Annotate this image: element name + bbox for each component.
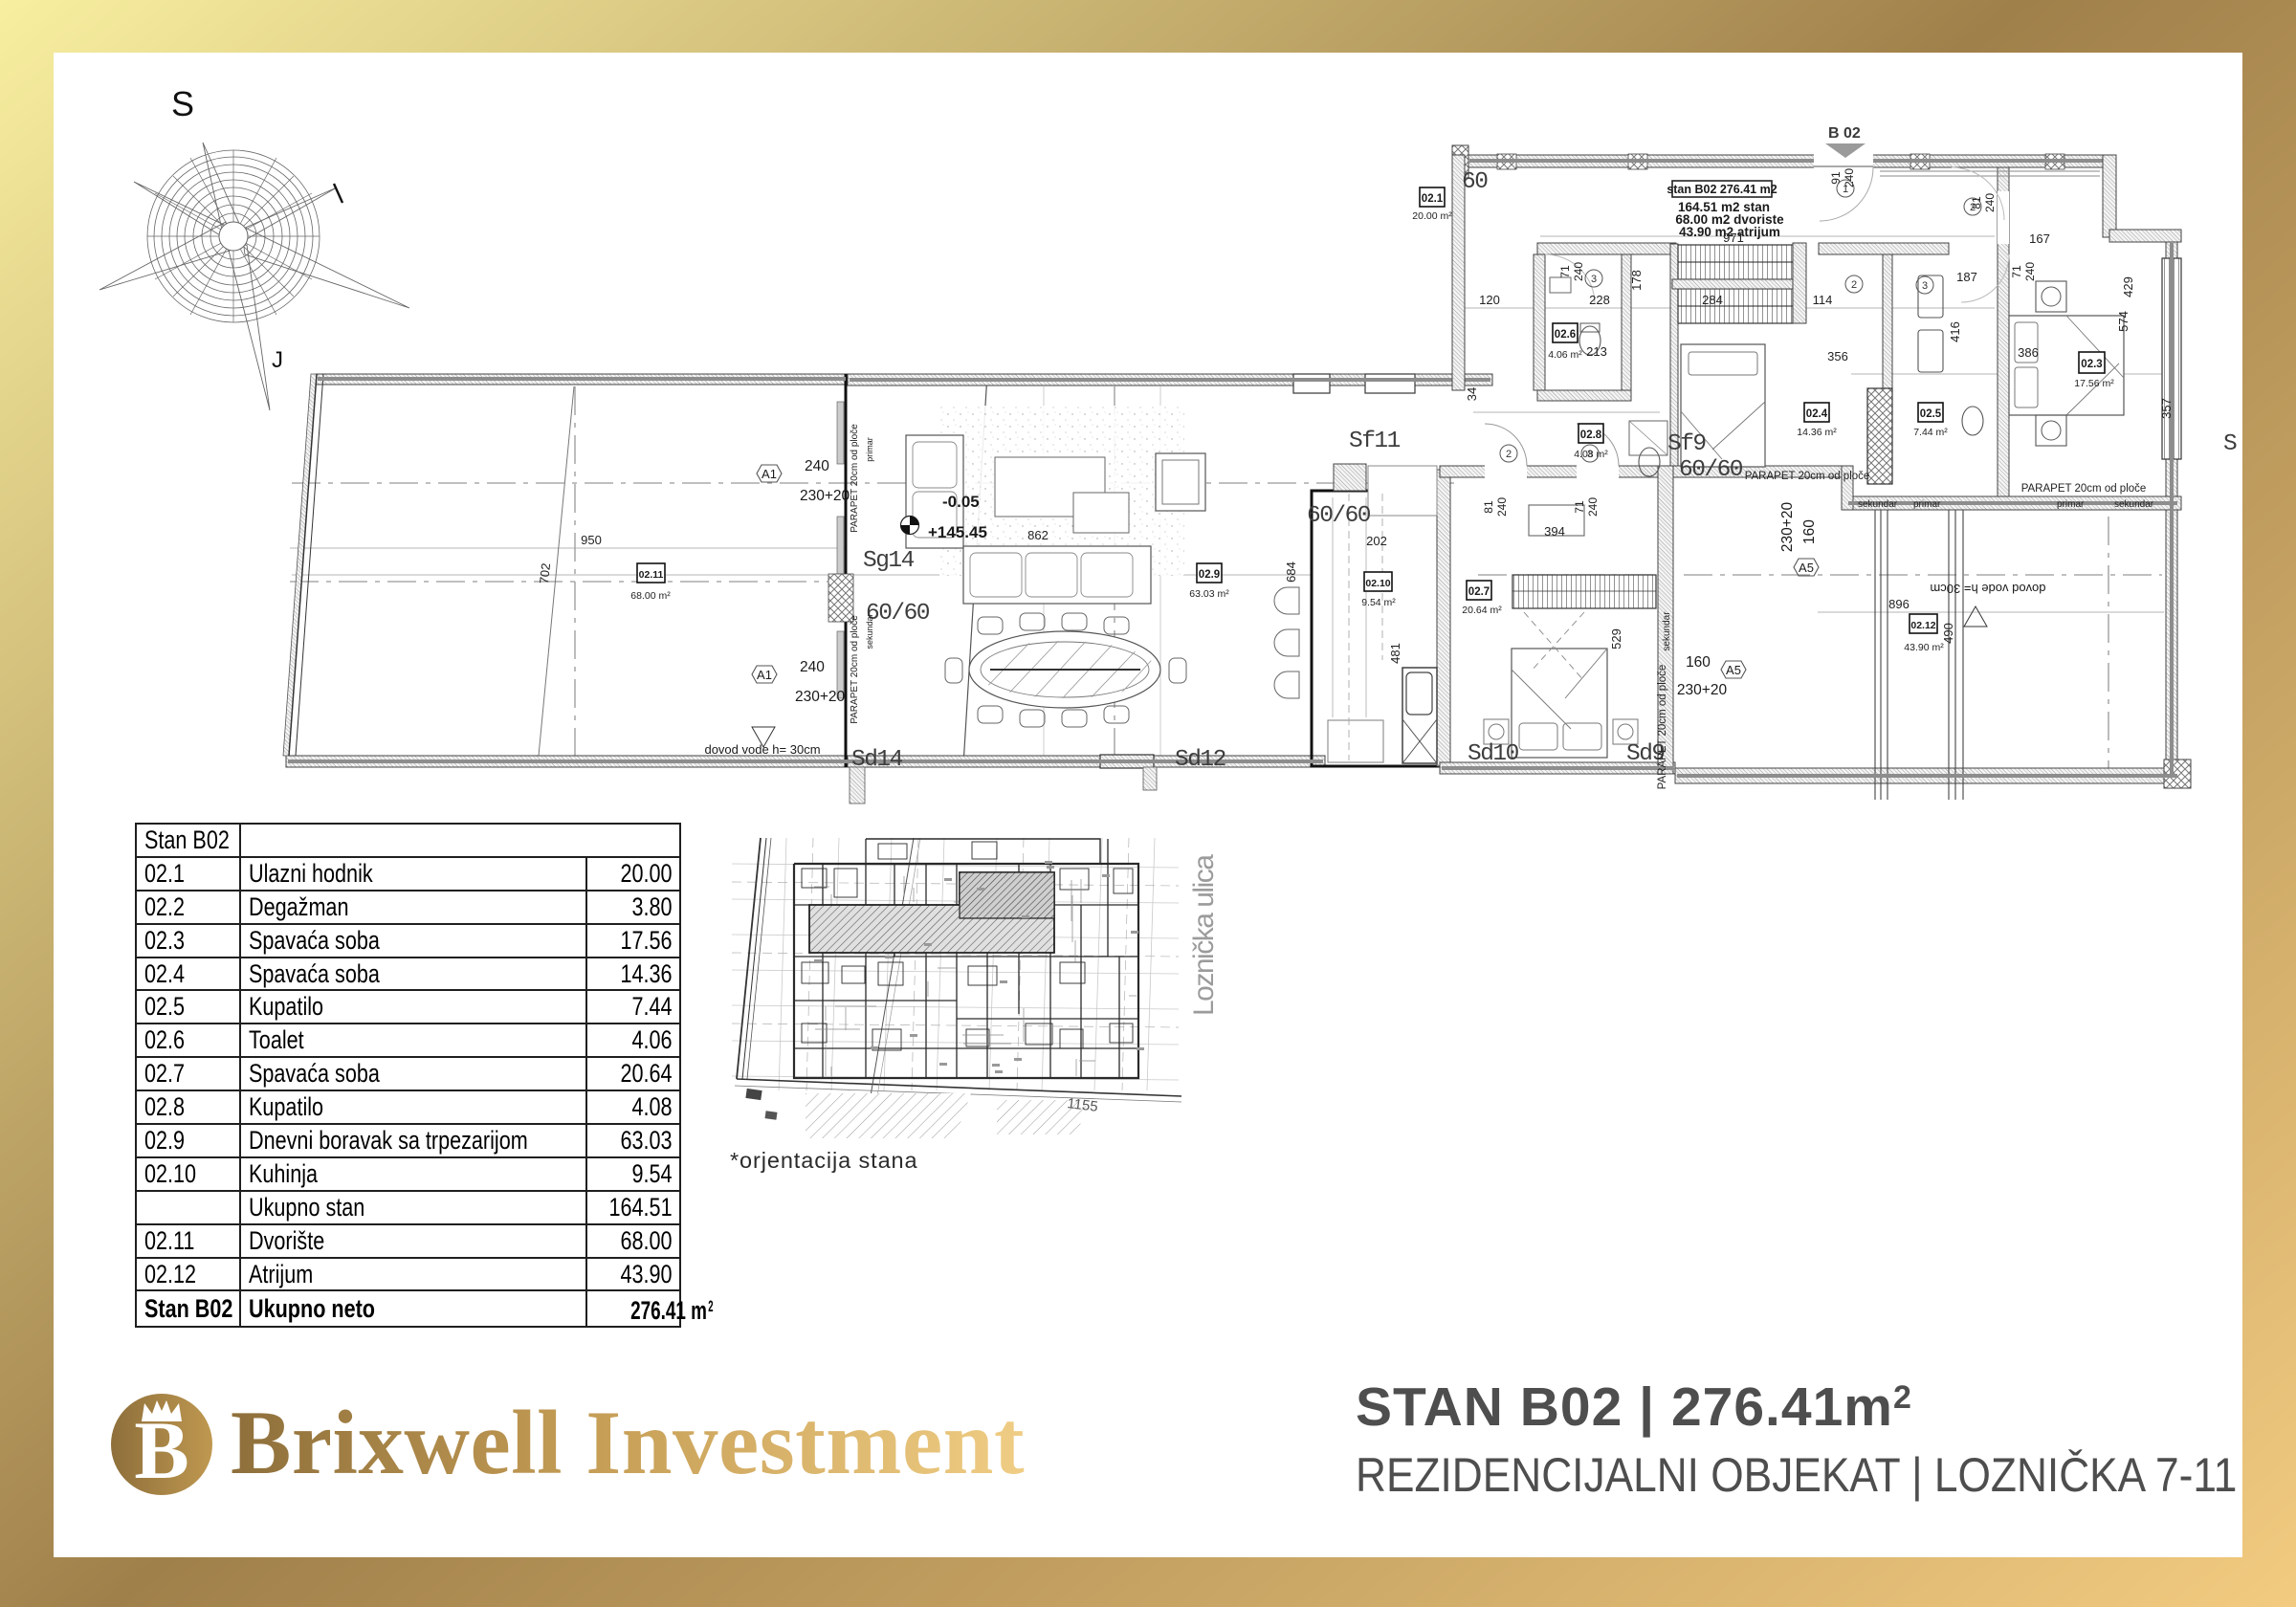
svg-text:240: 240 — [805, 458, 829, 474]
svg-text:2: 2 — [1851, 279, 1857, 291]
svg-text:230+20: 230+20 — [1677, 682, 1728, 698]
svg-text:PARAPET 20cm od ploče: PARAPET 20cm od ploče — [1745, 471, 1870, 482]
svg-text:02.6: 02.6 — [1555, 329, 1576, 341]
svg-text:Sd14: Sd14 — [851, 747, 903, 773]
svg-text:574: 574 — [2116, 311, 2130, 332]
svg-text:02.11: 02.11 — [639, 569, 664, 581]
svg-text:dovod vode h= 30cm: dovod vode h= 30cm — [1930, 582, 2045, 596]
svg-text:160: 160 — [1686, 654, 1711, 671]
svg-text:490: 490 — [1941, 623, 1955, 644]
svg-text:14.36 m²: 14.36 m² — [1797, 427, 1837, 438]
svg-text:230+20: 230+20 — [1779, 502, 1796, 553]
svg-text:91: 91 — [1829, 171, 1843, 185]
svg-text:02.12: 02.12 — [1910, 620, 1935, 631]
svg-text:B 02: B 02 — [1828, 125, 1861, 142]
svg-text:356: 356 — [1827, 349, 1848, 363]
svg-text:120: 120 — [1479, 293, 1500, 307]
svg-text:114: 114 — [1813, 293, 1833, 307]
svg-text:S: S — [2223, 431, 2237, 457]
svg-text:63.03 m²: 63.03 m² — [1189, 588, 1229, 600]
svg-text:81: 81 — [1482, 500, 1495, 514]
svg-text:60/60: 60/60 — [1679, 457, 1743, 483]
svg-text:Sf11: Sf11 — [1349, 429, 1401, 454]
svg-text:4.06 m²: 4.06 m² — [1548, 349, 1582, 361]
svg-text:862: 862 — [1027, 528, 1049, 542]
svg-text:240: 240 — [1983, 193, 1997, 212]
svg-text:Sd10: Sd10 — [1468, 741, 1519, 767]
svg-text:02.3: 02.3 — [2081, 359, 2102, 370]
svg-text:02.7: 02.7 — [1468, 586, 1490, 598]
svg-text:sekundar: sekundar — [1662, 611, 1672, 651]
svg-text:Sf9: Sf9 — [1667, 431, 1706, 457]
svg-text:primar: primar — [865, 437, 874, 462]
svg-text:213: 213 — [1586, 344, 1607, 359]
svg-text:A5: A5 — [1799, 561, 1814, 575]
svg-text:2: 2 — [1970, 202, 1976, 213]
svg-text:429: 429 — [2121, 276, 2135, 297]
svg-text:160: 160 — [1801, 519, 1818, 544]
svg-text:17.56 m²: 17.56 m² — [2074, 378, 2114, 389]
svg-text:PARAPET 20cm od ploče: PARAPET 20cm od ploče — [850, 424, 860, 533]
svg-text:3: 3 — [1587, 449, 1593, 460]
svg-text:240: 240 — [1586, 497, 1600, 517]
svg-text:02.8: 02.8 — [1580, 429, 1602, 441]
svg-text:60/60: 60/60 — [866, 601, 930, 627]
svg-text:529: 529 — [1609, 628, 1623, 649]
svg-text:1: 1 — [1843, 184, 1848, 195]
svg-text:A5: A5 — [1726, 663, 1741, 677]
svg-text:240: 240 — [1495, 497, 1509, 517]
svg-text:PARAPET 20cm od ploče: PARAPET 20cm od ploče — [1657, 665, 1668, 790]
svg-text:60/60: 60/60 — [1307, 503, 1371, 529]
svg-text:71: 71 — [2010, 265, 2023, 278]
svg-text:stan B02 276.41 m2: stan B02 276.41 m2 — [1667, 183, 1777, 196]
svg-text:702: 702 — [537, 562, 553, 584]
svg-text:primar: primar — [1913, 499, 1941, 510]
svg-text:sekundar: sekundar — [2114, 499, 2154, 510]
svg-text:60: 60 — [1462, 169, 1488, 195]
svg-text:481: 481 — [1388, 643, 1402, 664]
svg-text:primar: primar — [2057, 499, 2085, 510]
svg-text:230+20: 230+20 — [800, 488, 850, 504]
svg-text:394: 394 — [1544, 524, 1565, 539]
svg-text:202: 202 — [1366, 534, 1387, 548]
svg-text:J: J — [272, 347, 283, 373]
svg-text:3: 3 — [1591, 274, 1597, 285]
svg-text:284: 284 — [1702, 293, 1723, 307]
svg-text:PARAPET 20cm od ploče: PARAPET 20cm od ploče — [850, 615, 860, 724]
svg-text:02.1: 02.1 — [1422, 193, 1444, 205]
svg-text:68.00 m²: 68.00 m² — [630, 590, 671, 602]
svg-text:228: 228 — [1589, 293, 1610, 307]
svg-text:02.9: 02.9 — [1199, 569, 1220, 581]
svg-text:Sd12: Sd12 — [1175, 747, 1225, 773]
svg-text:2: 2 — [1506, 449, 1512, 460]
svg-text:-0.05: -0.05 — [942, 493, 980, 511]
svg-text:416: 416 — [1948, 321, 1962, 342]
svg-text:02.5: 02.5 — [1920, 408, 1942, 420]
svg-text:240: 240 — [1572, 262, 1585, 281]
svg-text:950: 950 — [581, 533, 602, 547]
svg-text:43.90 m²: 43.90 m² — [1904, 642, 1944, 653]
svg-text:9.54 m²: 9.54 m² — [1361, 597, 1396, 608]
svg-text:S: S — [171, 84, 194, 123]
svg-text:167: 167 — [2029, 231, 2050, 246]
svg-text:3: 3 — [1922, 280, 1928, 292]
svg-text:sekundar: sekundar — [865, 613, 874, 649]
svg-text:240: 240 — [800, 659, 825, 675]
svg-text:+145.45: +145.45 — [928, 523, 987, 541]
svg-text:386: 386 — [2018, 345, 2039, 360]
svg-text:71: 71 — [1558, 265, 1572, 278]
svg-text:B: B — [134, 1404, 188, 1496]
svg-text:187: 187 — [1956, 270, 1977, 284]
svg-text:20.00 m²: 20.00 m² — [1412, 210, 1452, 222]
svg-text:Sg14: Sg14 — [863, 548, 915, 574]
svg-text:PARAPET 20cm od ploče: PARAPET 20cm od ploče — [2021, 483, 2147, 495]
svg-text:34: 34 — [1465, 387, 1479, 401]
svg-text:A1: A1 — [762, 467, 777, 481]
svg-text:357: 357 — [2159, 398, 2174, 419]
svg-text:A1: A1 — [757, 668, 772, 682]
svg-text:02.10: 02.10 — [1365, 578, 1390, 589]
svg-text:178: 178 — [1629, 270, 1644, 291]
svg-text:02.4: 02.4 — [1806, 408, 1828, 420]
svg-text:sekundar: sekundar — [1858, 499, 1898, 510]
svg-text:7.44 m²: 7.44 m² — [1913, 427, 1948, 438]
svg-text:240: 240 — [2023, 262, 2037, 281]
svg-text:230+20: 230+20 — [795, 689, 846, 705]
svg-text:896: 896 — [1888, 597, 1910, 611]
svg-text:971: 971 — [1723, 231, 1744, 245]
svg-text:684: 684 — [1284, 561, 1298, 583]
svg-text:20.64 m²: 20.64 m² — [1462, 605, 1502, 616]
svg-text:71: 71 — [1573, 500, 1586, 514]
